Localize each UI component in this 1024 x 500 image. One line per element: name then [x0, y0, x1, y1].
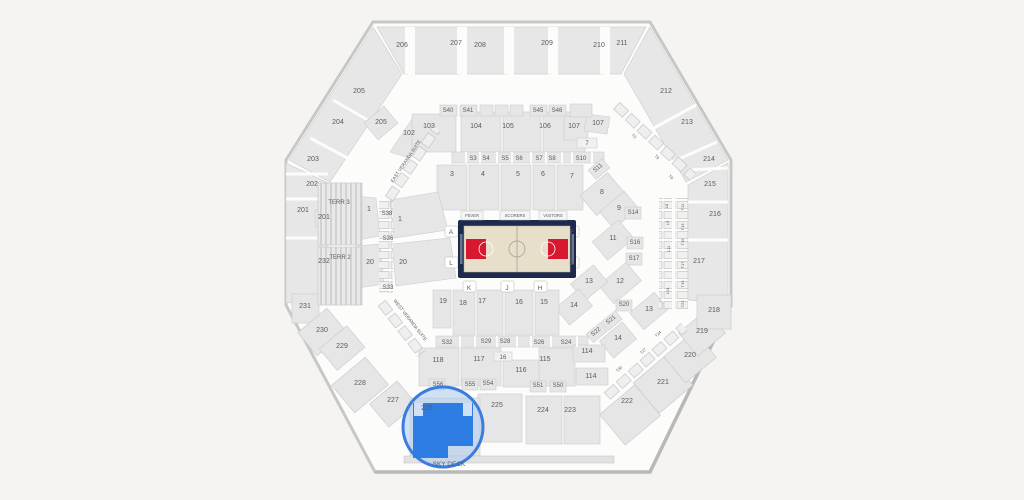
suite-s7[interactable]: S7: [535, 156, 543, 162]
section-222[interactable]: 222: [621, 398, 633, 405]
floor-block-1b[interactable]: [390, 192, 448, 238]
suite-s4[interactable]: S4: [482, 156, 490, 162]
section-223[interactable]: 223: [564, 407, 576, 414]
suite-s20[interactable]: S20: [619, 302, 630, 308]
suite-s17[interactable]: S17: [629, 256, 640, 262]
section-201[interactable]: 201: [318, 214, 330, 221]
floor-13[interactable]: 13: [645, 306, 653, 313]
terrace-box-l9[interactable]: L9: [665, 220, 670, 225]
terrace-box-t13[interactable]: T13: [680, 223, 685, 231]
floor-block-17[interactable]: [477, 290, 503, 335]
letter-f[interactable]: F: [570, 229, 574, 236]
terrace-box-l8[interactable]: L8: [664, 203, 669, 208]
floor-14[interactable]: 14: [614, 335, 622, 342]
floor-20[interactable]: 20: [399, 259, 407, 266]
floor-14[interactable]: 14: [570, 302, 578, 309]
suite-s6[interactable]: S6: [515, 156, 523, 162]
floor-15[interactable]: 15: [540, 299, 548, 306]
suite-s8[interactable]: S8: [548, 156, 556, 162]
section-204[interactable]: 204: [332, 119, 344, 126]
section-205[interactable]: 205: [375, 119, 387, 126]
suite-s3[interactable]: S3: [469, 156, 477, 162]
suite-s16[interactable]: S16: [630, 240, 641, 246]
floor-5[interactable]: 5: [516, 171, 520, 178]
floor-12[interactable]: 12: [616, 278, 624, 285]
section-217[interactable]: 217: [693, 258, 705, 265]
section-117[interactable]: 117: [473, 356, 484, 363]
section-104[interactable]: 104: [470, 123, 482, 130]
suite-s33[interactable]: S33: [383, 285, 394, 291]
section-215[interactable]: 215: [704, 181, 716, 188]
suite-s24[interactable]: S24: [561, 340, 572, 346]
section-211[interactable]: 211: [616, 40, 627, 47]
floor-1[interactable]: 1: [398, 216, 402, 223]
suite-s40[interactable]: S40: [443, 108, 454, 114]
floor-7[interactable]: 7: [570, 173, 574, 180]
letter-l[interactable]: L: [449, 260, 453, 267]
floor-17[interactable]: 17: [478, 298, 486, 305]
section-208[interactable]: 208: [474, 42, 486, 49]
suite-s41[interactable]: S41: [463, 108, 474, 114]
floor-6[interactable]: 6: [541, 171, 545, 178]
section-118[interactable]: 118: [432, 357, 443, 364]
section-105[interactable]: 105: [502, 123, 514, 130]
section-114[interactable]: 114: [585, 373, 596, 380]
terrace-box-l14[interactable]: L14: [665, 287, 670, 294]
section-232[interactable]: 232: [318, 258, 330, 265]
suite-box[interactable]: [495, 105, 508, 116]
section-203[interactable]: 203: [307, 156, 319, 163]
floor-18[interactable]: 18: [459, 300, 467, 307]
section-207[interactable]: 207: [450, 40, 462, 47]
suite-s32[interactable]: S32: [442, 340, 453, 346]
section-block-224[interactable]: [526, 396, 562, 444]
floor-block-18[interactable]: [453, 290, 475, 335]
terrace-box-t21[interactable]: T21: [680, 300, 685, 308]
floor-3[interactable]: 3: [450, 171, 454, 178]
floor-16[interactable]: 16: [500, 355, 507, 361]
floor-8[interactable]: 8: [600, 189, 604, 196]
suite-s38[interactable]: S38: [382, 211, 393, 217]
court-label-visitors: VISITORS: [543, 213, 563, 218]
floor-20[interactable]: 20: [366, 259, 374, 266]
section-221[interactable]: 221: [657, 379, 669, 386]
suite-s46[interactable]: S46: [552, 108, 563, 114]
terrace-box-t19[interactable]: T19: [680, 280, 685, 288]
terrace-column-right[interactable]: [675, 198, 688, 310]
arena-seating-map: 2062072082092102112052042052032022012012…: [0, 0, 1024, 500]
section-227[interactable]: 227: [387, 397, 399, 404]
seating-map-stage: 2062072082092102112052042052032022012012…: [0, 0, 1024, 500]
section-103[interactable]: 103: [423, 123, 435, 130]
section-116[interactable]: 116: [515, 367, 526, 374]
section-highlighted-226[interactable]: 226: [421, 405, 433, 412]
section-230[interactable]: 230: [316, 327, 328, 334]
section-224[interactable]: 224: [537, 407, 549, 414]
suite-s26[interactable]: S26: [534, 340, 545, 346]
section-214[interactable]: 214: [703, 156, 715, 163]
suite-s56[interactable]: S56: [433, 382, 444, 388]
suite-s55[interactable]: S55: [465, 382, 476, 388]
terrace-box-l11[interactable]: L11: [666, 245, 671, 252]
level-terr-3[interactable]: TERR 3: [328, 200, 350, 206]
basketball-court: [458, 211, 576, 278]
section-226-highlight[interactable]: [403, 387, 483, 467]
letter-g[interactable]: G: [569, 260, 574, 267]
letter-j[interactable]: J: [505, 285, 508, 292]
section-229[interactable]: 229: [336, 343, 348, 350]
suite-s50[interactable]: S50: [553, 383, 564, 389]
section-212[interactable]: 212: [660, 88, 672, 95]
suite-s10[interactable]: S10: [576, 156, 587, 162]
section-202[interactable]: 202: [306, 181, 318, 188]
floor-19[interactable]: 19: [439, 298, 447, 305]
floor-1[interactable]: 1: [367, 206, 371, 213]
section-225[interactable]: 225: [491, 402, 503, 409]
court-key-right: [548, 239, 568, 259]
section-114[interactable]: 114: [581, 348, 592, 355]
terrace-box-t11[interactable]: T11: [680, 203, 685, 210]
suite-s14[interactable]: S14: [628, 210, 639, 216]
floor-13[interactable]: 13: [585, 278, 593, 285]
floor-block-15[interactable]: [535, 290, 559, 335]
section-107[interactable]: 107: [592, 120, 604, 127]
section-220[interactable]: 220: [684, 352, 696, 359]
court-label-scorers: SCORERS: [505, 213, 526, 218]
court-key-left: [466, 239, 486, 259]
section-201[interactable]: 201: [297, 207, 309, 214]
section-218[interactable]: 218: [708, 307, 720, 314]
section-213[interactable]: 213: [681, 119, 693, 126]
section-107[interactable]: 107: [568, 123, 580, 130]
letter-k[interactable]: K: [467, 285, 472, 292]
suite-s54[interactable]: S54: [483, 381, 494, 387]
section-219[interactable]: 219: [696, 328, 708, 335]
section-205[interactable]: 205: [353, 88, 365, 95]
suite-s29[interactable]: S29: [481, 339, 492, 345]
section-206[interactable]: 206: [396, 42, 408, 49]
section-102[interactable]: 102: [403, 130, 415, 137]
letter-h[interactable]: H: [538, 285, 543, 292]
floor-4[interactable]: 4: [481, 171, 485, 178]
section-216[interactable]: 216: [709, 211, 721, 218]
section-228[interactable]: 228: [354, 380, 366, 387]
section-106[interactable]: 106: [539, 123, 551, 130]
section-block-223[interactable]: [564, 396, 600, 444]
suite-box[interactable]: [570, 104, 592, 117]
floor-block-19[interactable]: [433, 290, 451, 328]
terrace-box-t17[interactable]: T17: [680, 261, 685, 269]
suite-s45[interactable]: S45: [533, 108, 544, 114]
letter-a[interactable]: A: [449, 229, 454, 236]
section-block-104[interactable]: [461, 112, 501, 152]
floor-11[interactable]: 11: [609, 235, 616, 242]
section-block-115[interactable]: [539, 348, 575, 386]
section-226-notch-right: [463, 403, 472, 416]
floor-16[interactable]: 16: [515, 299, 523, 306]
section-block-105[interactable]: [503, 112, 541, 152]
suite-s51[interactable]: S51: [533, 383, 544, 389]
suite-box[interactable]: [480, 105, 493, 116]
section-210[interactable]: 210: [593, 42, 605, 49]
level-terr-2[interactable]: TERR 2: [329, 255, 351, 261]
court-label-fever: FEVER: [465, 213, 479, 218]
terrace-box-t15[interactable]: T15: [680, 238, 685, 246]
floor-block-7[interactable]: [557, 165, 583, 210]
floor-9[interactable]: 9: [617, 205, 621, 212]
suite-box[interactable]: [510, 105, 523, 116]
area-label-sky-deck[interactable]: SKY DECK: [433, 461, 466, 468]
section-115[interactable]: 115: [539, 356, 550, 363]
floor-block-16[interactable]: [505, 290, 533, 335]
section-209[interactable]: 209: [541, 40, 553, 47]
suite-s28[interactable]: S28: [500, 339, 511, 345]
section-231[interactable]: 231: [299, 303, 311, 310]
suite-s36[interactable]: S36: [383, 236, 394, 242]
suite-s5[interactable]: S5: [501, 156, 509, 162]
